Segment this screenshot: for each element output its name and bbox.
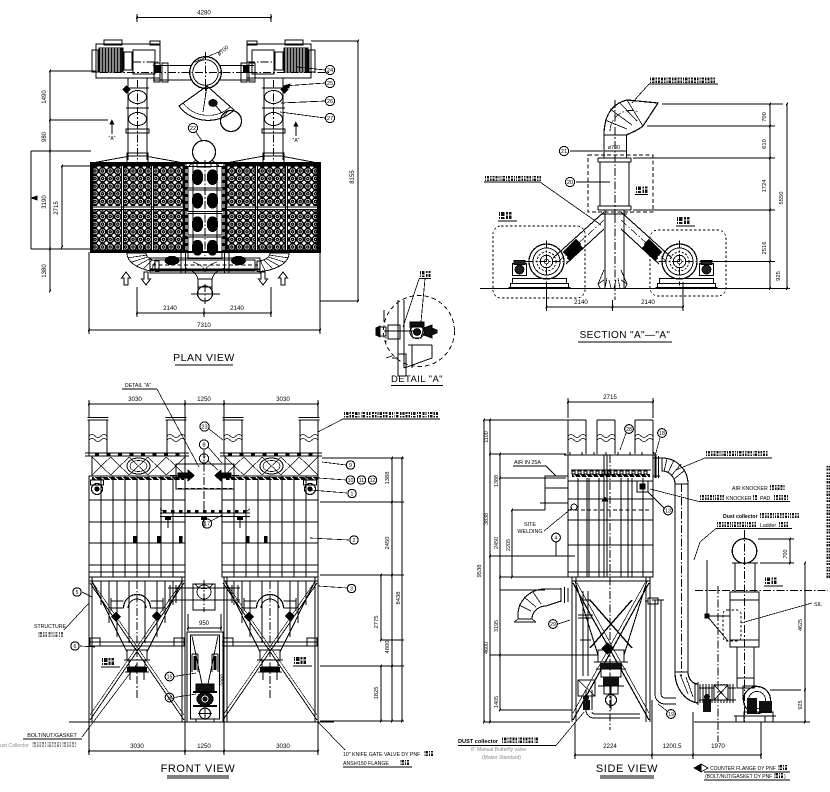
svg-text:16: 16 [167,695,173,701]
svg-text:3838: 3838 [484,513,490,525]
svg-text:1380: 1380 [42,264,48,278]
svg-text:ANSI#150 FLANGE: ANSI#150 FLANGE [343,761,389,767]
svg-text:3030: 3030 [130,743,144,750]
svg-text:PLAN VIEW: PLAN VIEW [173,352,235,364]
svg-text:3195: 3195 [494,620,500,632]
svg-text:2140: 2140 [163,305,177,312]
svg-text:3190: 3190 [42,195,48,209]
svg-text:1100: 1100 [484,431,490,443]
svg-text:1405: 1405 [494,696,500,708]
svg-text:2715: 2715 [54,201,60,215]
svg-text:19: 19 [668,712,674,718]
svg-text:610: 610 [762,139,768,149]
svg-text:925: 925 [798,701,804,710]
svg-text:20: 20 [567,180,573,186]
svg-text:950: 950 [199,621,210,627]
svg-text:8155: 8155 [350,170,356,184]
svg-text:17: 17 [204,522,210,528]
svg-text:BOLT/NUT/GASKET: BOLT/NUT/GASKET [27,733,77,739]
svg-text:4600: 4600 [484,642,490,654]
svg-text:1388: 1388 [385,472,391,485]
svg-text:2450: 2450 [494,537,500,549]
svg-text:25: 25 [327,81,333,87]
svg-text:2200: 2200 [221,674,227,686]
svg-text:980: 980 [42,131,48,142]
svg-text:(BOLT/NUT/GASKET DY PNF: (BOLT/NUT/GASKET DY PNF [705,774,772,780]
svg-text:FRONT VIEW: FRONT VIEW [161,763,236,775]
svg-text:24: 24 [327,68,333,74]
svg-text:1970: 1970 [711,743,725,750]
svg-text:27: 27 [327,116,333,122]
svg-text:3030: 3030 [276,743,290,750]
svg-text:2140: 2140 [641,299,655,306]
svg-text:AIR IN 25A: AIR IN 25A [514,460,541,466]
svg-text:3: 3 [350,586,353,592]
svg-text:925: 925 [776,271,782,281]
svg-text:9538: 9538 [477,565,483,578]
svg-text:1: 1 [351,491,354,497]
svg-text:SIL: SIL [814,602,822,608]
svg-text:18: 18 [659,431,665,437]
svg-text:SECTION "A"—"A": SECTION "A"—"A" [580,330,671,341]
svg-text:Ladder: Ladder [760,523,776,529]
svg-text:4280: 4280 [197,10,211,17]
svg-text:"A": "A" [293,138,300,144]
svg-text:7: 7 [202,457,205,463]
svg-text:13: 13 [665,508,671,514]
svg-text:3030: 3030 [276,396,290,403]
svg-text:DETAIL "A": DETAIL "A" [391,374,443,385]
svg-text:ø700: ø700 [608,145,620,151]
svg-text:(Maker Standard): (Maker Standard) [482,755,521,761]
svg-text:1825: 1825 [374,687,380,700]
svg-text:4625: 4625 [798,619,804,631]
svg-text:2140: 2140 [230,305,244,312]
svg-text:2775: 2775 [374,616,380,629]
svg-text:6: 6 [74,644,77,650]
svg-text:700: 700 [783,550,789,559]
svg-text:1490: 1490 [42,90,48,104]
svg-text:21: 21 [561,149,567,155]
svg-text:8438: 8438 [396,592,402,605]
svg-text:WELDING: WELDING [517,529,542,535]
svg-text:23: 23 [201,425,207,431]
svg-text:8: 8 [202,443,205,449]
svg-text:10: 10 [348,478,354,484]
svg-text:2140: 2140 [574,299,588,306]
svg-text:2715: 2715 [603,394,617,401]
svg-text:1388: 1388 [494,475,500,487]
svg-text:ust Collector: ust Collector [0,743,29,749]
svg-text:DETAIL "A": DETAIL "A" [125,383,151,389]
svg-text:1250: 1250 [197,396,211,403]
svg-text:COUNTER FLANGE DY PNF: COUNTER FLANGE DY PNF [710,766,776,772]
svg-text:AIR KNOCKER: AIR KNOCKER [732,486,768,492]
svg-text:2205: 2205 [506,539,512,551]
svg-text:26: 26 [327,99,333,105]
svg-text:22: 22 [190,126,196,132]
svg-text:8" Manual Butterfly valve: 8" Manual Butterfly valve [471,747,526,753]
svg-text:1724: 1724 [762,179,768,193]
svg-text:15: 15 [167,674,173,680]
svg-text:10" KNIFE GATE VALVE DY PNF: 10" KNIFE GATE VALVE DY PNF [343,752,420,758]
svg-text:DUST collector: DUST collector [458,739,499,745]
svg-text:4: 4 [555,535,558,541]
svg-text:1200.5: 1200.5 [663,743,682,750]
svg-text:2516: 2516 [762,242,768,255]
svg-text:11: 11 [359,478,364,484]
svg-text:5550: 5550 [779,192,785,205]
svg-text:12: 12 [370,478,376,484]
svg-text:3030: 3030 [128,396,142,403]
svg-text:Dust collector: Dust collector [723,514,758,520]
svg-text:PAD: PAD [760,496,771,502]
svg-text:28: 28 [626,427,632,433]
svg-text:SIDE VIEW: SIDE VIEW [596,763,658,775]
svg-text:STRUCTURE: STRUCTURE [34,624,67,630]
svg-text:5: 5 [76,590,79,596]
svg-text:29: 29 [550,622,556,628]
svg-text:SITE: SITE [524,522,536,528]
svg-text:"A": "A" [109,136,116,142]
svg-text:1250: 1250 [197,743,211,750]
svg-text:7310: 7310 [197,322,211,329]
svg-text:4800: 4800 [385,641,391,654]
svg-text:9: 9 [349,463,352,469]
svg-text:2450: 2450 [385,537,391,550]
svg-text:2224: 2224 [603,743,617,750]
svg-text:700: 700 [762,112,768,122]
svg-text:KNOCKER: KNOCKER [726,496,752,502]
svg-text:2: 2 [353,538,356,544]
